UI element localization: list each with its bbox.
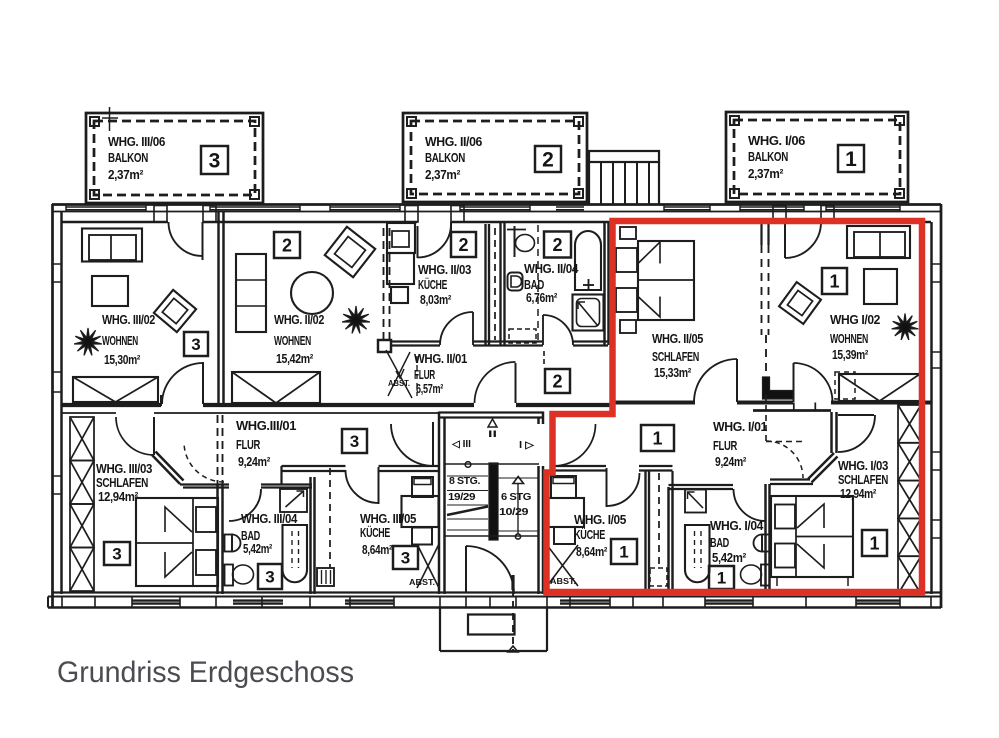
svg-text:6 STG: 6 STG <box>501 491 531 503</box>
svg-text:WHG. III/06: WHG. III/06 <box>108 134 165 149</box>
svg-text:SCHLAFEN: SCHLAFEN <box>652 349 699 364</box>
svg-text:WHG. I/05: WHG. I/05 <box>574 512 626 527</box>
svg-text:5,42m²: 5,42m² <box>712 550 747 565</box>
svg-text:WHG I/02: WHG I/02 <box>830 312 880 327</box>
svg-text:WHG. I/01: WHG. I/01 <box>713 419 767 434</box>
svg-text:8 STG.: 8 STG. <box>449 475 480 487</box>
svg-text:WHG. I/06: WHG. I/06 <box>748 133 805 148</box>
svg-text:8,64m²: 8,64m² <box>576 544 608 559</box>
svg-text:II: II <box>488 429 497 439</box>
svg-text:15,39m²: 15,39m² <box>832 347 869 362</box>
svg-text:2: 2 <box>552 235 562 255</box>
svg-text:WOHNEN: WOHNEN <box>274 333 311 348</box>
svg-text:KÜCHE: KÜCHE <box>574 527 606 542</box>
svg-text:WHG. II/06: WHG. II/06 <box>425 134 482 149</box>
svg-text:1: 1 <box>717 569 726 588</box>
svg-text:12,94m²: 12,94m² <box>840 486 877 501</box>
svg-text:SCHLAFEN: SCHLAFEN <box>838 472 888 487</box>
svg-text:WHG.III/01: WHG.III/01 <box>236 418 296 433</box>
svg-text:2: 2 <box>542 149 554 172</box>
svg-text:8,03m²: 8,03m² <box>420 292 452 307</box>
svg-text:WOHNEN: WOHNEN <box>830 331 868 346</box>
svg-text:10/29: 10/29 <box>499 506 529 518</box>
svg-text:◁ III: ◁ III <box>451 439 471 450</box>
svg-text:2: 2 <box>458 235 468 255</box>
svg-text:1: 1 <box>845 148 857 171</box>
svg-text:2,37m²: 2,37m² <box>425 167 461 182</box>
svg-text:6,76m²: 6,76m² <box>526 290 558 305</box>
svg-text:BALKON: BALKON <box>108 150 148 165</box>
svg-text:I ▷: I ▷ <box>519 440 535 451</box>
svg-text:3: 3 <box>112 545 121 564</box>
svg-text:WHG. II/05: WHG. II/05 <box>652 331 703 346</box>
svg-text:9,24m²: 9,24m² <box>238 454 271 469</box>
svg-text:ABST.: ABST. <box>409 578 435 587</box>
svg-text:3: 3 <box>209 150 221 173</box>
svg-text:BAD: BAD <box>710 535 729 550</box>
svg-text:6,57m²: 6,57m² <box>416 381 444 396</box>
svg-text:KÜCHE: KÜCHE <box>418 277 447 292</box>
svg-text:WHG. I/04: WHG. I/04 <box>710 518 764 533</box>
svg-text:ABST.: ABST. <box>388 379 410 388</box>
svg-text:15,42m²: 15,42m² <box>276 351 314 366</box>
svg-text:9,24m²: 9,24m² <box>715 454 747 469</box>
svg-text:15,30m²: 15,30m² <box>104 352 141 367</box>
svg-text:1: 1 <box>652 428 662 448</box>
svg-text:1: 1 <box>829 271 839 291</box>
svg-text:ABST.: ABST. <box>550 577 576 586</box>
svg-text:3: 3 <box>265 568 274 587</box>
svg-text:WHG. II/03: WHG. II/03 <box>418 262 471 277</box>
svg-text:12,94m²: 12,94m² <box>98 489 139 504</box>
svg-text:3: 3 <box>191 335 200 354</box>
svg-text:2,37m²: 2,37m² <box>748 166 784 181</box>
svg-text:15,33m²: 15,33m² <box>654 365 692 380</box>
svg-text:8,64m²: 8,64m² <box>362 542 393 557</box>
svg-text:3: 3 <box>350 432 359 451</box>
svg-text:2,37m²: 2,37m² <box>108 167 144 182</box>
svg-text:2: 2 <box>552 371 562 391</box>
svg-text:WHG. III/03: WHG. III/03 <box>96 461 152 476</box>
svg-text:FLUR: FLUR <box>236 437 261 452</box>
svg-text:KÜCHE: KÜCHE <box>360 525 390 540</box>
svg-text:WHG. III/02: WHG. III/02 <box>102 312 155 327</box>
svg-text:1: 1 <box>869 533 879 553</box>
svg-text:19/29: 19/29 <box>448 491 476 503</box>
svg-text:WHG. III/04: WHG. III/04 <box>241 511 298 526</box>
svg-text:5,42m²: 5,42m² <box>243 541 273 556</box>
svg-text:BALKON: BALKON <box>425 150 465 165</box>
svg-text:WHG. I/03: WHG. I/03 <box>838 458 888 473</box>
svg-text:WOHNEN: WOHNEN <box>102 333 138 348</box>
svg-text:WHG. II/02: WHG. II/02 <box>274 312 324 327</box>
svg-text:Grundriss Erdgeschoss: Grundriss Erdgeschoss <box>57 656 354 689</box>
svg-text:2: 2 <box>282 235 292 255</box>
svg-text:FLUR: FLUR <box>713 438 738 453</box>
svg-text:3: 3 <box>401 549 410 568</box>
svg-text:WHG. III/05: WHG. III/05 <box>360 511 416 526</box>
svg-text:1: 1 <box>619 543 628 562</box>
svg-text:SCHLAFEN: SCHLAFEN <box>96 475 148 490</box>
svg-text:BALKON: BALKON <box>748 149 788 164</box>
svg-text:WHG. II/04: WHG. II/04 <box>524 261 579 276</box>
svg-text:WHG. II/01: WHG. II/01 <box>414 351 467 366</box>
svg-text:FLUR: FLUR <box>414 367 436 382</box>
